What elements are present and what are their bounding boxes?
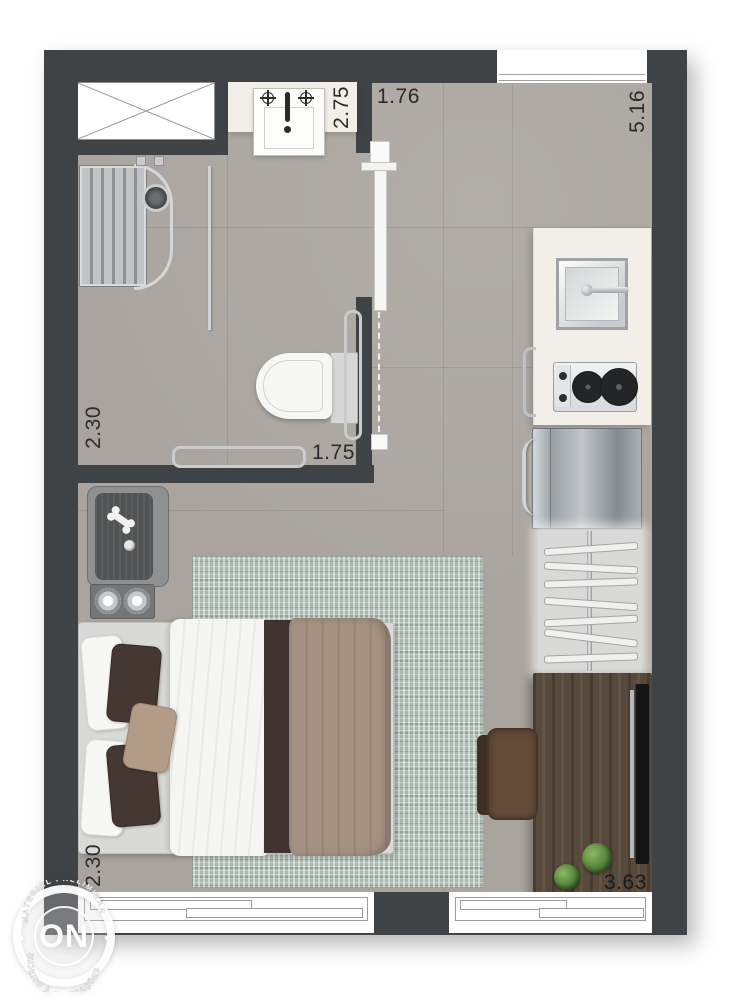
refrigerator-handle xyxy=(522,438,538,516)
desk-chair xyxy=(487,728,538,820)
towel-bar xyxy=(172,446,306,468)
plant xyxy=(554,864,580,890)
shaft-cross-icon xyxy=(78,83,214,139)
cooktop-knob xyxy=(559,394,567,402)
pet-bowl xyxy=(123,587,151,615)
sliding-door-cap xyxy=(370,141,390,163)
pet-bowl xyxy=(94,587,122,615)
bottom-wall-pier xyxy=(374,892,449,935)
faucet-handle-icon xyxy=(300,92,312,104)
bed-blanket xyxy=(289,618,391,856)
kitchen-sink-basin xyxy=(565,267,619,321)
shower-drain xyxy=(142,184,170,212)
pet-bed-cushion xyxy=(95,493,153,580)
sliding-door-handle xyxy=(361,162,397,171)
living-window xyxy=(449,892,652,933)
pet-bed xyxy=(87,486,169,587)
badge-dot xyxy=(19,936,23,940)
burner xyxy=(600,368,638,406)
bedroom-window xyxy=(78,892,374,933)
tv xyxy=(635,684,649,864)
window-sash xyxy=(539,908,644,918)
top-wall xyxy=(228,50,497,83)
window-sash xyxy=(186,908,363,918)
watermark-badge: MATERIAL PRELIMINAR SUJEITO À ALTERAÇÕES… xyxy=(8,880,120,992)
refrigerator xyxy=(532,428,642,529)
kitchen-window xyxy=(497,50,647,83)
shaft-box xyxy=(77,82,215,140)
window-frame-line xyxy=(499,74,645,75)
toilet xyxy=(256,353,332,419)
bed-sheet xyxy=(170,619,267,856)
shower-valve xyxy=(136,156,146,166)
sliding-door-track xyxy=(378,312,380,432)
sliding-door-stop xyxy=(371,434,388,450)
dimension-label-living-right: 5.16 xyxy=(626,90,650,133)
floorplan-page: 2.75 1.76 5.16 2.30 1.75 2.30 3.63 MATER… xyxy=(0,0,745,1000)
badge-logo: ON xyxy=(39,918,89,954)
dimension-label-hall-top: 1.76 xyxy=(377,85,420,109)
dimension-label-bathroom-top: 2.75 xyxy=(330,86,354,129)
plant xyxy=(582,843,612,873)
dimension-label-bathroom-bottom: 1.75 xyxy=(312,441,355,465)
shower-valve xyxy=(154,156,164,166)
dimension-label-bathroom-left: 2.30 xyxy=(82,406,106,449)
left-wall xyxy=(44,50,78,935)
pet-ball xyxy=(124,540,135,551)
tv-stand xyxy=(630,690,634,858)
sink-drain xyxy=(284,126,291,133)
counter-handle xyxy=(523,347,536,417)
kitchen-faucet-arm xyxy=(591,287,629,293)
right-wall xyxy=(652,50,687,935)
refrigerator-door-line xyxy=(550,429,551,528)
faucet-handle-icon xyxy=(262,92,274,104)
faucet-spout xyxy=(285,92,290,122)
kitchen-sink xyxy=(556,258,628,330)
shower-glass-partition xyxy=(208,166,211,330)
badge-dot xyxy=(105,936,109,940)
bed-runner xyxy=(264,620,291,853)
dimension-label-living-bottom: 3.63 xyxy=(604,871,647,895)
window-frame-line xyxy=(499,80,645,81)
towel-bar xyxy=(344,310,362,440)
toilet-seat xyxy=(263,360,323,412)
cooktop xyxy=(553,362,637,412)
tile-grout-line xyxy=(512,83,513,556)
cooktop-knob xyxy=(559,372,567,380)
